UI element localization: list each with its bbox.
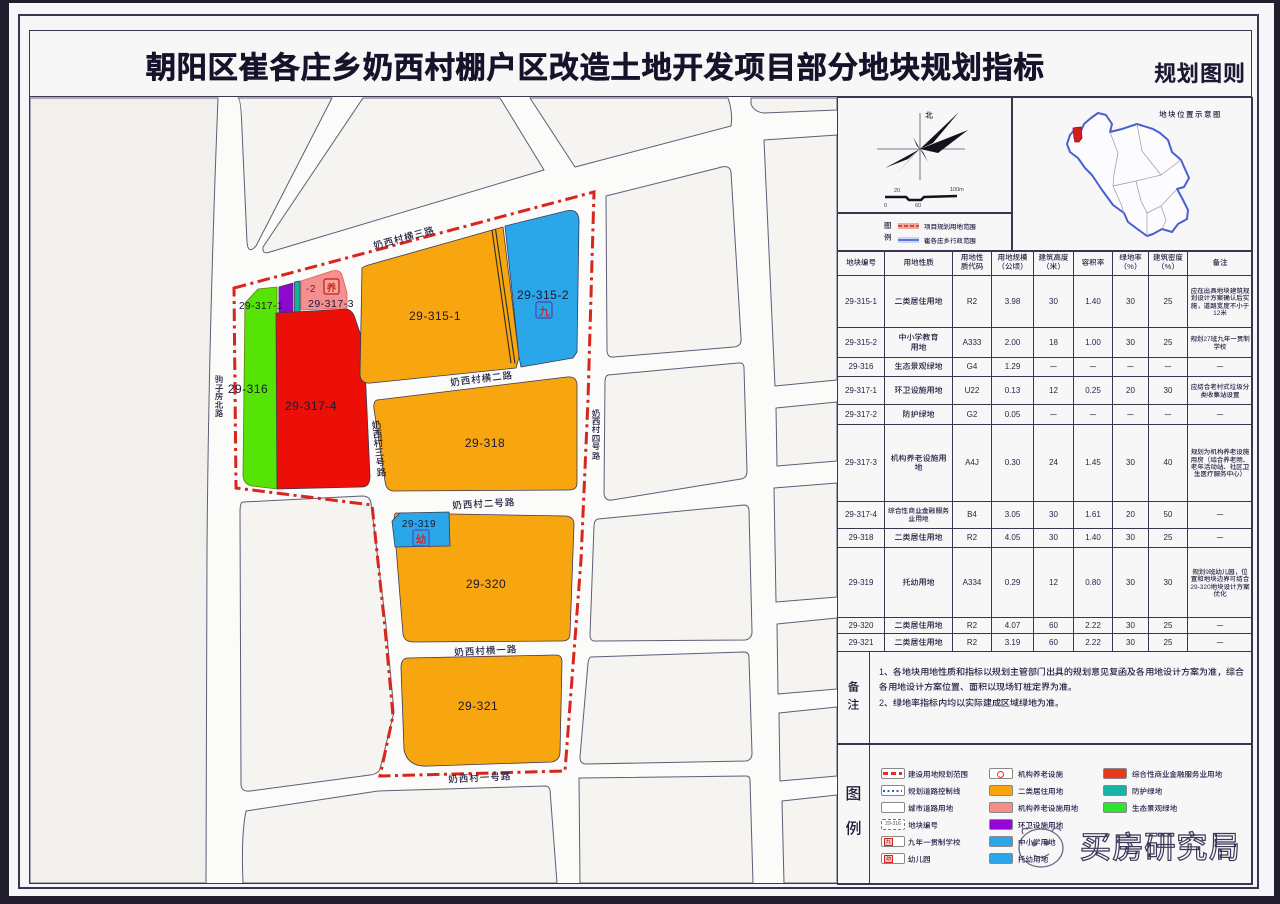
svg-text:29-315-1: 29-315-1	[409, 307, 461, 324]
svg-text:29-317-3: 29-317-3	[308, 296, 354, 311]
svg-text:北: 北	[925, 110, 933, 121]
svg-text:项目规划用地范围: 项目规划用地范围	[924, 221, 977, 231]
svg-text:0: 0	[884, 201, 887, 209]
svg-text:养: 养	[326, 279, 337, 294]
svg-text:29-317-1: 29-317-1	[239, 297, 283, 312]
svg-text:九: 九	[539, 304, 550, 320]
svg-text:-2: -2	[306, 280, 316, 295]
svg-text:29-316: 29-316	[228, 380, 268, 397]
svg-text:地块位置示意图: 地块位置示意图	[1159, 109, 1222, 120]
svg-text:驹子房北路: 驹子房北路	[213, 374, 225, 418]
svg-text:29-318: 29-318	[465, 434, 505, 451]
svg-text:29-321: 29-321	[458, 697, 498, 714]
svg-text:图: 图	[884, 220, 892, 231]
svg-text:29-320: 29-320	[466, 575, 506, 592]
svg-text:29-317-4: 29-317-4	[285, 397, 337, 414]
svg-text:例: 例	[884, 232, 892, 243]
svg-text:幼: 幼	[416, 532, 427, 548]
svg-text:29-319: 29-319	[402, 515, 436, 530]
svg-text:100m: 100m	[950, 185, 964, 193]
svg-text:29-315-2: 29-315-2	[517, 286, 569, 303]
svg-text:20: 20	[894, 186, 900, 194]
svg-text:60: 60	[915, 201, 921, 209]
svg-text:崔各庄乡行政范围: 崔各庄乡行政范围	[924, 235, 977, 245]
svg-text:奶西村四号路: 奶西村四号路	[590, 408, 602, 461]
